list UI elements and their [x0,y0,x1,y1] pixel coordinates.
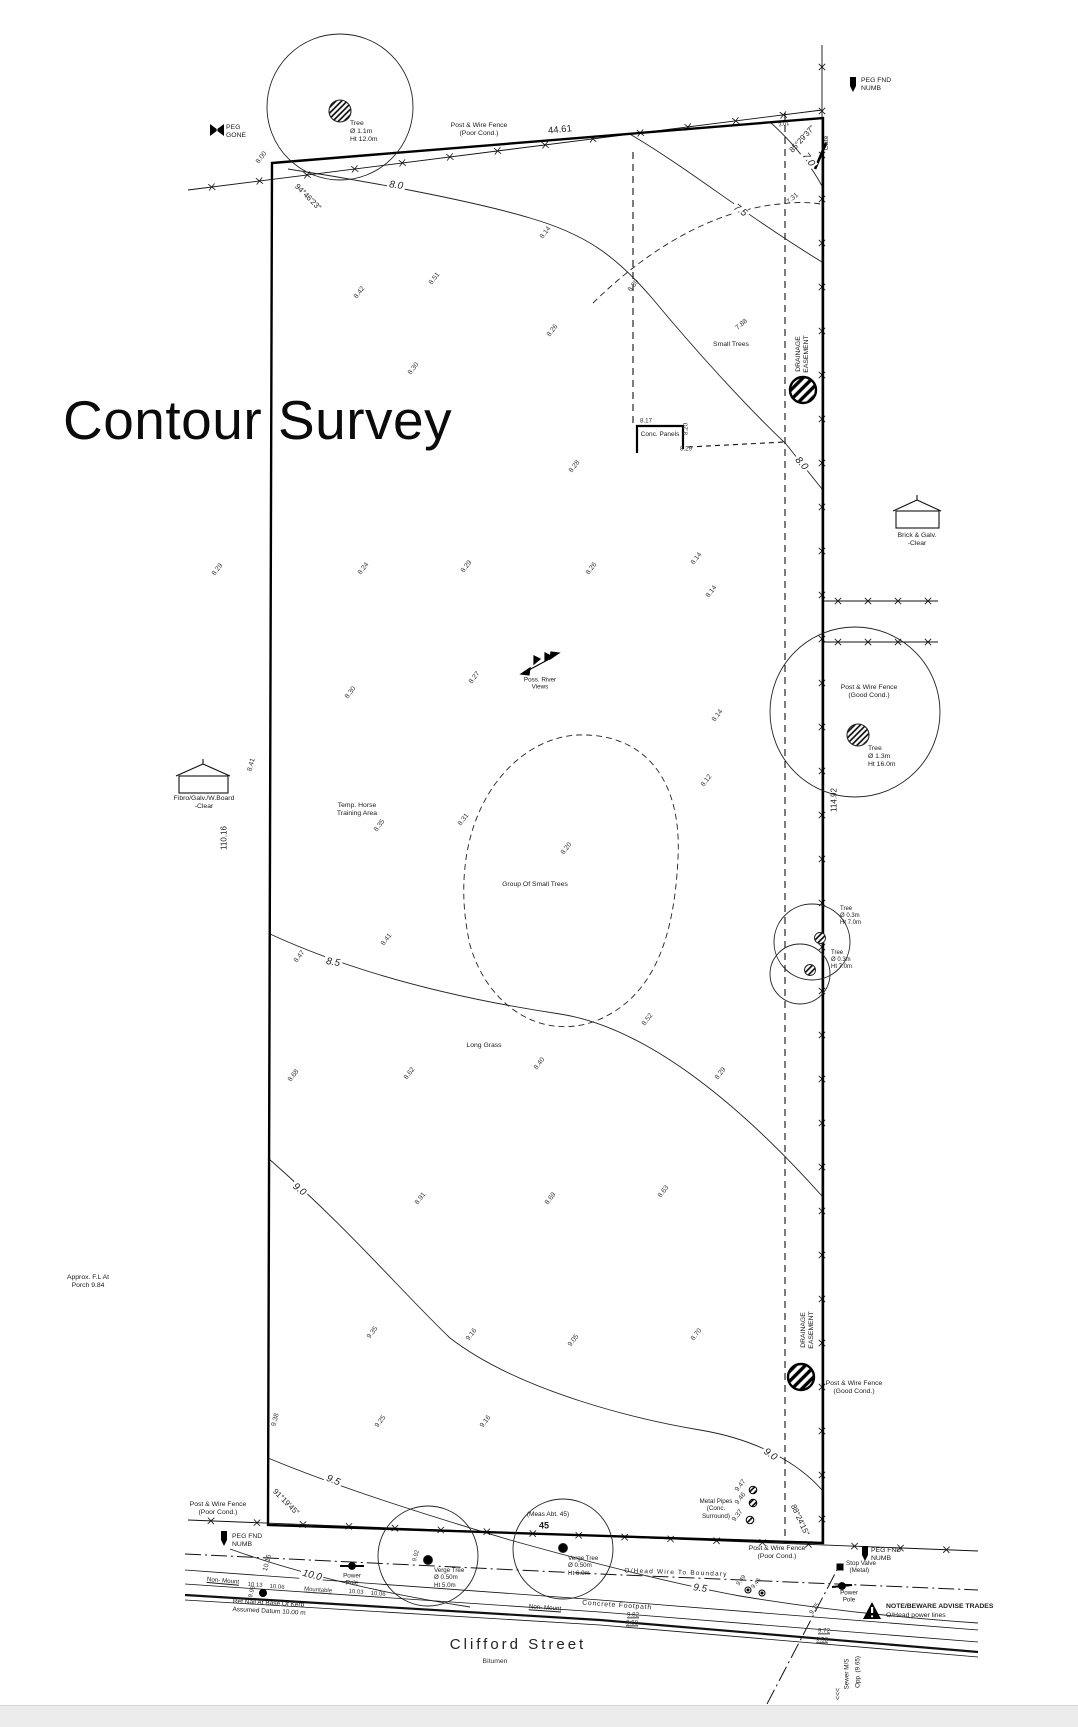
spot-elevation-label: 8.20 [560,841,574,856]
spot-elevation-label: 8.29 [680,445,692,452]
spot-elevation-label: 8.14 [711,708,725,723]
annotation-label: Poss. River Views [524,677,556,692]
contour-label: 7.5 [729,201,750,221]
annotation-label: Tree Ø 1.3m Ht 16.0m [868,745,896,769]
contour-label: 8.5 [323,956,343,971]
spot-elevation-label: 8.00 [255,150,269,165]
annotation-label: 45 [539,1521,549,1532]
spot-elevation-label: 8.52 [641,1012,655,1027]
annotation-label: PEG GONE [226,124,246,140]
spot-elevation-label: 8.69 [544,1191,558,1206]
annotation-label: Power Pole [343,1573,361,1588]
spot-elevation-label: 9.37 [731,1508,745,1523]
contour-label: 9.0 [759,1445,780,1465]
dimension-label: 3.01 [778,121,790,129]
spot-elevation-label: 8.29 [714,1066,728,1081]
spot-elevation-label: 9.68 [626,1619,638,1626]
bearing-label: 85°29'37" [787,124,816,155]
annotation-label: Tree Ø 0.3m Ht 7.0m [840,906,861,927]
spot-elevation-label: 9.38 [270,1413,281,1428]
annotation-label: Non- Mount [207,1576,240,1586]
annotation-label: PEG FND NUMB [232,1533,262,1549]
spot-elevation-label: 9.58 [816,1636,828,1643]
annotation-label: Stop Valve (Metal) [846,1560,876,1575]
spot-elevation-label: 9.05 [567,1333,581,1348]
annotation-label: Post & Wire Fence (Poor Cond.) [749,1545,806,1561]
spot-elevation-label: 8.28 [568,459,582,474]
bearing-label: 88°24'15" [789,1503,811,1537]
spot-elevation-label: 8.51 [428,271,442,286]
spot-elevation-label: 8.91 [414,1191,428,1206]
spot-elevation-label: 9.72 [818,1627,830,1634]
spot-elevation-label: 8.14 [539,225,553,240]
spot-elevation-label: 8.14 [705,584,719,599]
annotation-label: Tree Ø 0.3m Ht 7.0m [831,950,852,971]
spot-elevation-label: 9.92 [412,1549,422,1562]
spot-elevation-label: 8.20 [682,423,689,435]
annotation-label: Non- Mount [529,1603,562,1613]
contour-label: 8.0 [791,453,812,474]
spot-elevation-label: 8.41 [380,932,394,947]
bearing-label: 91°19'45" [271,1487,301,1517]
spot-elevation-label: 10.16 [262,1554,274,1573]
spot-elevation-label: 8.30 [344,685,358,700]
spot-elevation-label: 8.40 [533,1056,547,1071]
spot-elevation-label: 8.12 [700,773,714,788]
annotation-label: Metal Pipes (Conc. Surround) [700,1498,733,1520]
annotation-label: NOTE/BEWARE ADVISE TRADES [886,1603,993,1611]
street-name-label: Clifford Street [437,1636,599,1653]
dimension-label: 114.92 [829,788,838,812]
spot-elevation-label: 8.17 [638,417,654,424]
spot-elevation-label: 8.47 [293,949,307,964]
dimension-label: 44.61 [548,123,573,137]
spot-elevation-label: 8.70 [690,1327,704,1342]
annotation-label: Conc. Panels [641,431,680,439]
spot-elevation-label: 9.82 [627,1611,639,1618]
spot-elevation-label: 10.13 [247,1582,262,1590]
spot-elevation-label: 8.29 [460,559,474,574]
annotation-label: Sewer M/S [843,1659,850,1690]
spot-elevation-label: 9.16 [479,1414,493,1429]
survey-plan-page: 44.61110.16114.923.0194°46'23"85°29'37"9… [0,0,1078,1727]
spot-elevation-label: 8.30 [407,361,421,376]
annotation-label: DRAINAGE EASEMENT [795,335,811,372]
contour-label: 10.0 [299,1567,325,1584]
footer-bar [0,1705,1078,1727]
street-surface-label: Bitumen [455,1658,535,1665]
spot-elevation-label: 9.35 [366,1325,380,1340]
annotation-label: Post & Wire Fence (Good Cond.) [841,684,898,700]
spot-elevation-label: 9.49 [736,1574,749,1588]
annotation-label: DRAINAGE EASEMENT [800,1311,816,1348]
annotation-label: Power Pole [840,1590,858,1605]
spot-elevation-label: 10.06 [269,1584,284,1592]
annotation-label: Gate [823,136,831,151]
spot-elevation-label: 8.31 [457,812,471,827]
contour-label: 9.5 [322,1472,343,1490]
annotation-label: Post & Wire Fence (Poor Cond.) [451,122,508,138]
spot-elevation-label: 9.25 [374,1414,388,1429]
plan-title: Contour Survey [63,388,452,452]
spot-elevation-label: 8.63 [657,1184,671,1199]
spot-elevation-label: 8.41 [246,758,257,773]
spot-elevation-label: 8.39 [627,278,641,293]
spot-elevation-label: 8.29 [211,562,225,577]
spot-elevation-label: 8.26 [546,323,560,338]
spot-elevation-label: 8.35 [373,818,387,833]
spot-elevation-label: 8.27 [468,670,482,685]
spot-elevation-label: 8.62 [403,1066,417,1081]
annotation-label: O/Head Wire To Boundary [624,1567,728,1578]
annotation-label: Long Grass [466,1042,501,1050]
annotation-label: Approx. F.L At Porch 9.84 [67,1274,109,1290]
annotation-label: PEG FND NUMB [861,77,891,93]
spot-elevation-label: 9.16 [465,1327,479,1342]
contour-label: 9.5 [690,1582,709,1596]
spot-elevation-label: 7.31 [785,192,800,207]
spot-elevation-label: 9.46 [751,1577,764,1591]
spot-elevation-label: 8.24 [357,561,371,576]
spot-elevation-label: 8.68 [287,1068,301,1083]
spot-elevation-label: 8.26 [585,561,599,576]
spot-elevation-label: 9.75 [808,1602,822,1617]
annotation-label: Tree Ø 1.1m Ht 12.0m [350,120,378,144]
spot-elevation-label: 10.06 [370,1591,385,1599]
annotation-label: Ref Nail At Base Of Kerb Assumed Datum 1… [232,1598,306,1617]
annotation-label: <<< [835,1688,843,1700]
contour-label: 8.0 [386,179,405,193]
spot-elevation-label: 7.88 [734,318,749,333]
annotation-label: Verge Tree Ø 0.50m Ht 6.0m [568,1555,598,1577]
contour-label: 9.0 [288,1180,309,1200]
dimension-label: 110.16 [219,826,228,850]
contour-label: 7.0 [798,149,818,170]
annotation-label: Group Of Small Trees [502,881,568,889]
spot-elevation-label: 10.03 [348,1589,363,1597]
spot-elevation-label: 9.46 [734,1491,748,1506]
spot-elevation-label: 8.14 [690,551,704,566]
plan-labels: 44.61110.16114.923.0194°46'23"85°29'37"9… [0,0,1078,1727]
annotation-label: Post & Wire Fence (Poor Cond.) [190,1501,247,1517]
bearing-label: 94°46'23" [293,182,323,212]
annotation-label: Post & Wire Fence (Good Cond.) [826,1380,883,1396]
annotation-label: (Meas Abt. 45) [527,1511,569,1519]
annotation-label: Temp. Horse Training Area [337,802,377,818]
annotation-label: Concrete Footpath [582,1600,652,1613]
annotation-label: Opp. (9.65) [854,1656,861,1688]
annotation-label: Fibro/Galv./W.Board -Clear [174,795,235,811]
spot-elevation-label: Mountable [304,1586,332,1595]
annotation-label: Small Trees [713,341,749,349]
annotation-label: Verge Tree Ø 0.50m Ht 5.0m [434,1567,464,1589]
annotation-label: O/Head power lines [886,1612,946,1620]
spot-elevation-label: 8.42 [353,285,367,300]
annotation-label: Brick & Galv. -Clear [898,532,937,548]
